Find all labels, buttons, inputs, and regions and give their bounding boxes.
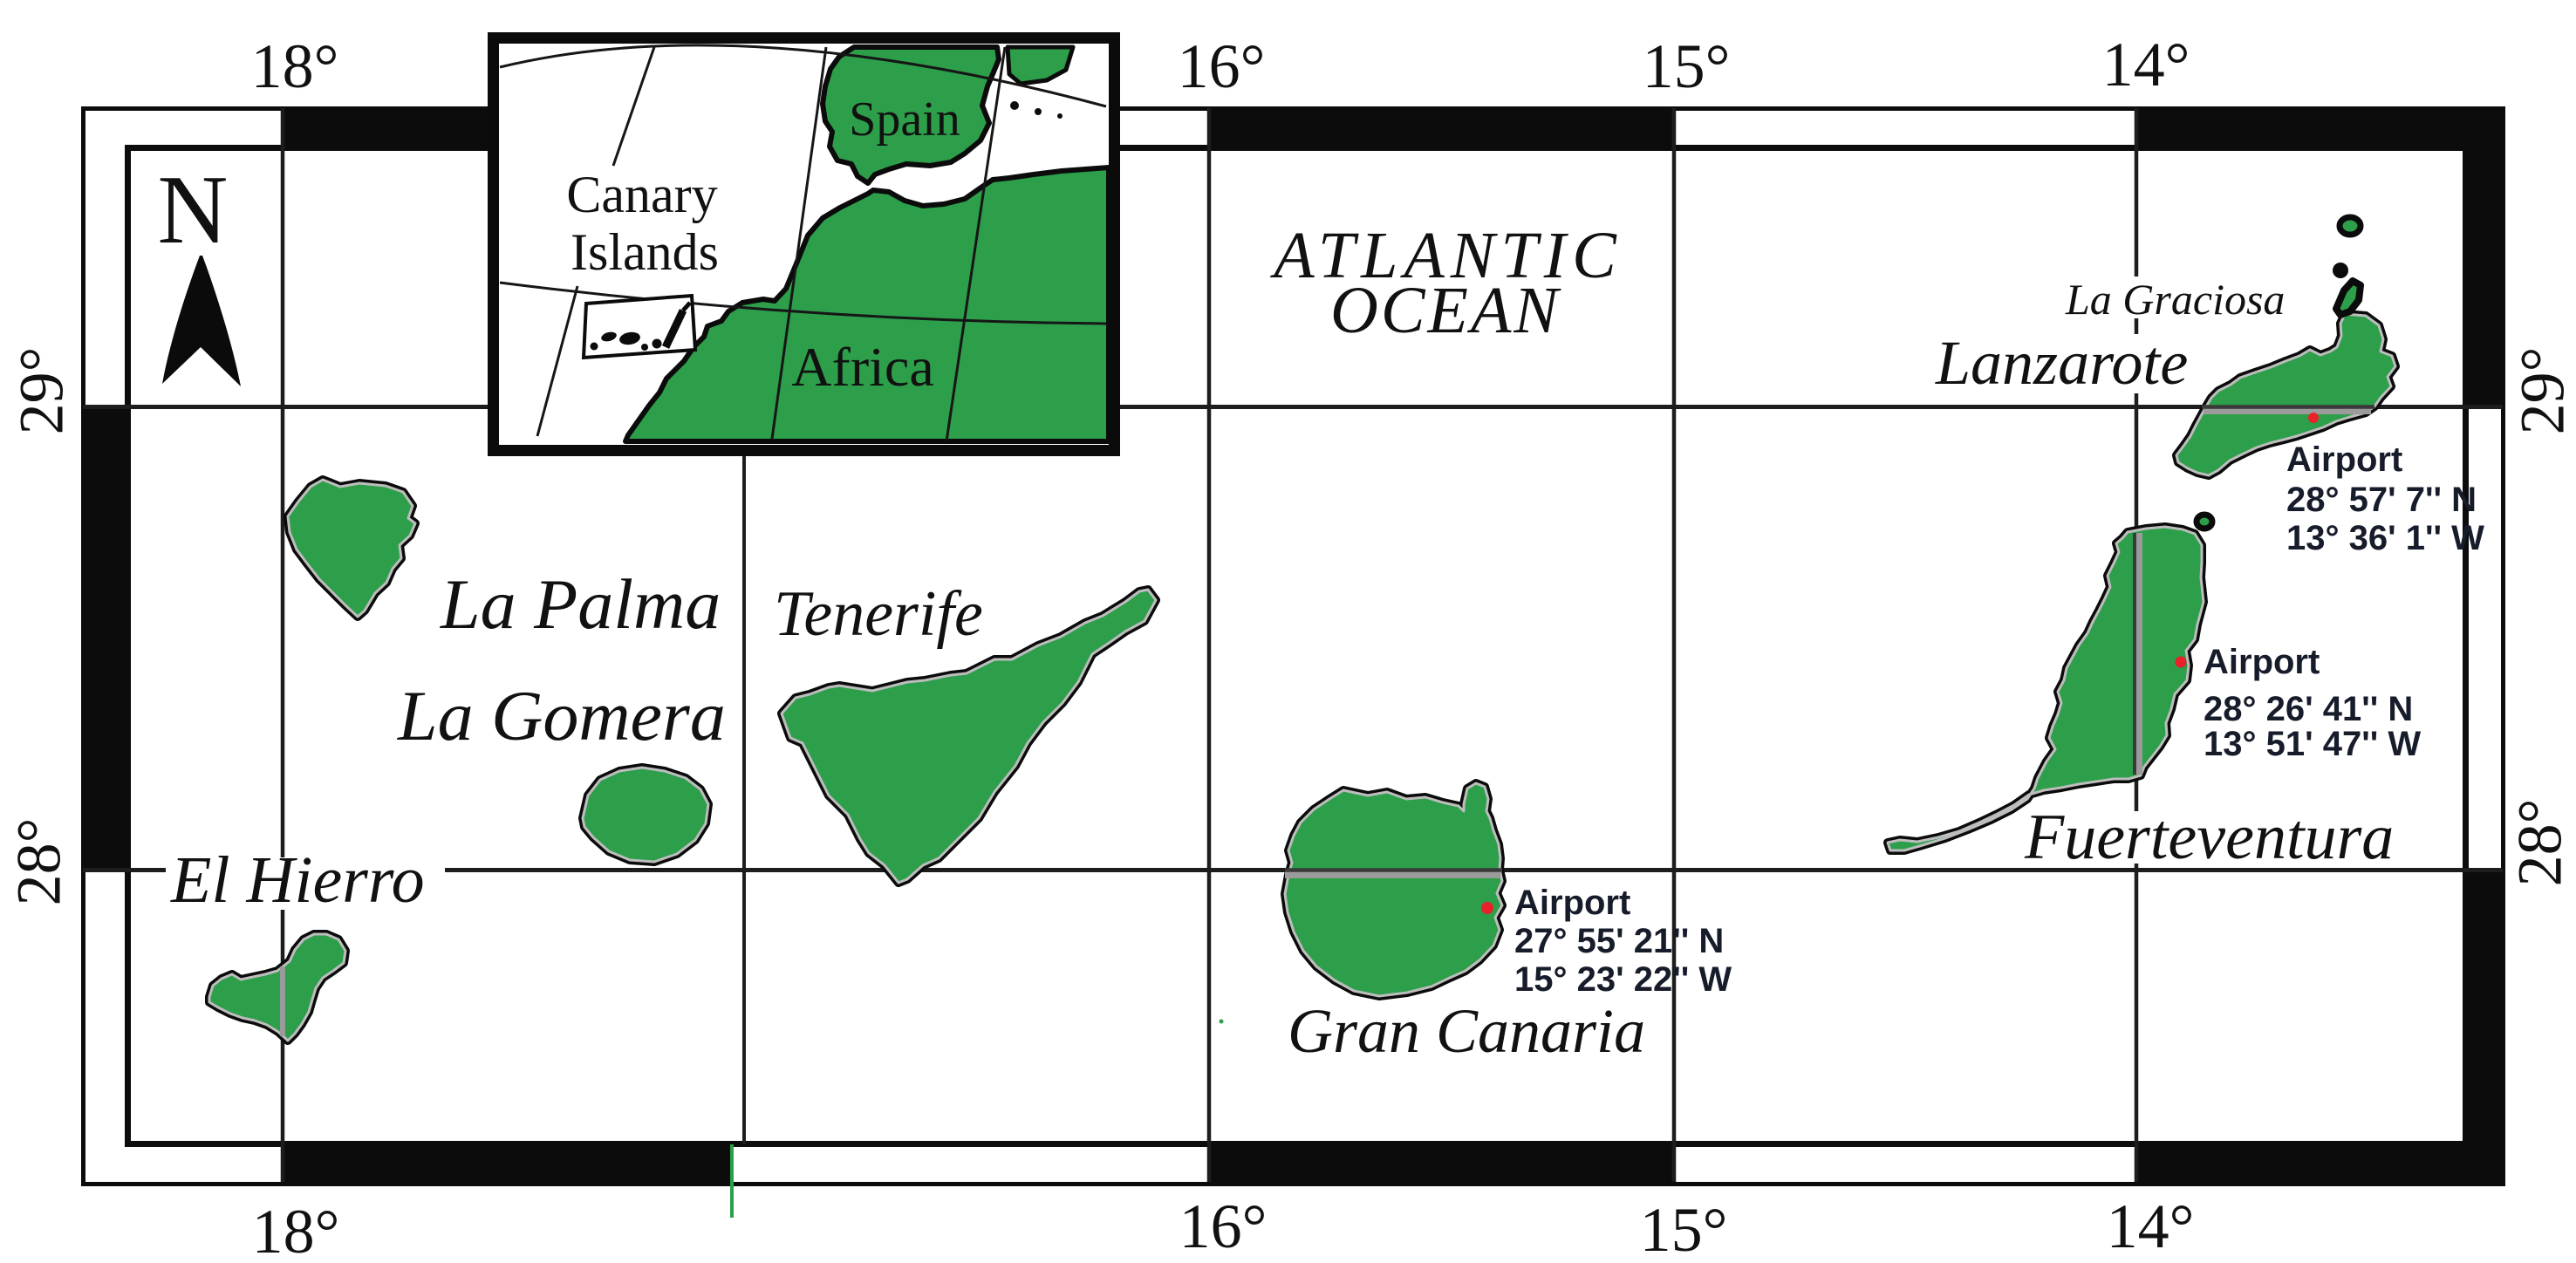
svg-text:28°: 28° (2505, 799, 2575, 887)
svg-text:27° 55' 21'' N: 27° 55' 21'' N (1514, 922, 1724, 960)
svg-text:28° 57' 7'' N: 28° 57' 7'' N (2286, 481, 2477, 519)
svg-text:14°: 14° (2102, 30, 2190, 99)
svg-text:13° 51' 47'' W: 13° 51' 47'' W (2204, 725, 2421, 763)
svg-text:Canary: Canary (566, 166, 717, 223)
svg-text:18°: 18° (251, 31, 339, 101)
svg-text:28° 26' 41'' N: 28° 26' 41'' N (2204, 690, 2413, 728)
svg-text:Airport: Airport (2286, 440, 2402, 479)
svg-text:28°: 28° (4, 818, 74, 906)
svg-text:Airport: Airport (2204, 643, 2320, 681)
svg-text:La Graciosa: La Graciosa (2065, 275, 2285, 324)
svg-text:15°: 15° (1643, 31, 1731, 101)
svg-text:Lanzarote: Lanzarote (1935, 328, 2188, 398)
svg-text:Islands: Islands (571, 223, 719, 281)
svg-text:Fuerteventura: Fuerteventura (2024, 802, 2394, 873)
svg-text:La Palma: La Palma (440, 564, 721, 644)
svg-text:Spain: Spain (849, 92, 960, 147)
svg-text:15°: 15° (1640, 1195, 1728, 1263)
svg-text:16°: 16° (1178, 31, 1266, 101)
svg-text:El Hierro: El Hierro (170, 843, 425, 917)
svg-text:Tenerife: Tenerife (774, 578, 983, 650)
svg-text:Africa: Africa (791, 336, 933, 398)
svg-text:Airport: Airport (1514, 884, 1630, 922)
svg-text:16°: 16° (1179, 1191, 1268, 1261)
svg-text:N: N (158, 156, 229, 264)
svg-text:18°: 18° (252, 1197, 340, 1263)
svg-text:15° 23' 22'' W: 15° 23' 22'' W (1514, 960, 1732, 999)
svg-text:14°: 14° (2107, 1191, 2195, 1261)
svg-text:La Gomera: La Gomera (397, 676, 726, 755)
svg-text:29°: 29° (2508, 347, 2576, 435)
svg-text:29°: 29° (7, 347, 77, 435)
svg-text:OCEAN: OCEAN (1330, 274, 1561, 347)
svg-text:Gran Canaria: Gran Canaria (1288, 996, 1645, 1066)
svg-text:13° 36' 1'' W: 13° 36' 1'' W (2286, 519, 2484, 557)
